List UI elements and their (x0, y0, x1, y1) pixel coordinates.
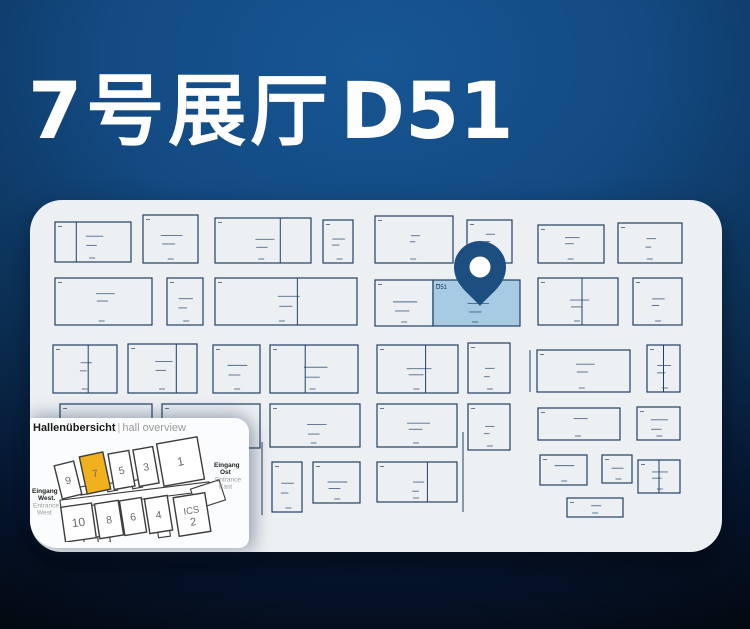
booth (167, 278, 203, 325)
hall-9: 9 (54, 461, 82, 499)
booth (215, 218, 311, 263)
booth-text-marks (621, 228, 656, 260)
booth-text-marks (146, 220, 182, 260)
booth-text-marks (471, 409, 494, 447)
booth (637, 407, 680, 440)
entrance-west-label: West. (38, 495, 55, 502)
hall-8: 8 (94, 500, 123, 538)
booth (143, 215, 198, 263)
booth (377, 404, 457, 447)
booth-text-marks (640, 412, 668, 437)
entrance-west-label: Eingang (32, 488, 58, 495)
overview-title-en: hall overview (122, 422, 186, 434)
booth-text-marks (541, 230, 580, 260)
booth (538, 408, 620, 440)
booth-text-marks (605, 460, 624, 480)
entrance-east-label: Eingang (214, 462, 240, 469)
hall-title-cn: 7号展厅 (28, 67, 332, 157)
booth-text-marks (636, 283, 665, 322)
booth (272, 462, 302, 512)
booth-text-marks (570, 503, 601, 514)
booth-text-marks (170, 283, 193, 322)
booth-text-marks (326, 225, 345, 260)
booth-text-marks (380, 350, 431, 390)
hall-map-card: D51 Hallenübersicht|hall overview 975311… (30, 200, 722, 552)
booth-text-marks (380, 409, 430, 444)
booth-text-marks (378, 285, 417, 323)
booth (213, 345, 260, 393)
booth-text-marks (273, 350, 328, 390)
hall-1: 1 (157, 437, 205, 486)
booth-text-marks (378, 221, 420, 260)
pin-hole (470, 257, 491, 278)
booth (55, 278, 152, 325)
booth (537, 350, 630, 392)
booth (540, 455, 587, 485)
booth (215, 278, 357, 325)
hall-6: 6 (119, 497, 146, 535)
booth-text-marks (218, 223, 274, 260)
booth-text-marks (218, 283, 300, 322)
entrance-east-label-en: East (219, 484, 232, 491)
entrance-east-label: Ost (220, 469, 232, 476)
entrance-east-label-en: Entrance (215, 476, 241, 483)
booth-text-marks (275, 467, 294, 509)
booth-text-marks (541, 413, 588, 437)
hall-overview-inset: Hallenübersicht|hall overview 9753110864… (30, 418, 249, 548)
booth-number: D51 (340, 67, 513, 157)
promo-graphic: 7号展厅D51 D51 Hallenübersicht|hall overvie… (0, 0, 750, 629)
booth-text-marks (56, 350, 92, 390)
hall-overview-title: Hallenübersicht|hall overview (30, 418, 249, 434)
booth (270, 404, 360, 447)
booth (618, 223, 682, 263)
overview-title-de: Hallenübersicht (33, 422, 116, 434)
booth (55, 222, 131, 262)
overview-title-separator: | (118, 422, 121, 434)
entrance-west-label-en: West (37, 510, 52, 517)
booth (323, 220, 353, 263)
booth (270, 345, 358, 393)
entrance-west: EingangWest.EntranceWest (32, 488, 59, 517)
booth-text-marks (543, 460, 574, 482)
hall-ICS-2: ICS2 (173, 493, 211, 537)
booth-text-marks (316, 467, 347, 500)
booth (375, 216, 453, 263)
entrance-west-label-en: Entrance (33, 502, 59, 509)
entrance-east: EingangOstEntranceEast (214, 462, 241, 491)
booth (468, 404, 510, 450)
hall-4: 4 (144, 495, 172, 533)
booth (313, 462, 360, 503)
booth-text-marks (641, 465, 668, 490)
booth-text-marks (58, 283, 115, 322)
booth-number-label: D51 (436, 285, 448, 291)
hall-overview-diagram: 9753110864ICS2EingangWest.EntranceWestEi… (30, 434, 249, 542)
booth-text-marks (273, 409, 327, 444)
hall-10: 10 (61, 503, 97, 542)
booth-text-marks (131, 349, 173, 390)
booth (375, 280, 433, 326)
booth (53, 345, 117, 393)
booth-text-marks (540, 355, 595, 389)
booth-text-marks (650, 350, 671, 389)
booth (633, 278, 682, 325)
booth-text-marks (471, 348, 495, 390)
booth-text-marks (58, 227, 103, 259)
hall-number: 10 (71, 515, 86, 531)
booth (567, 498, 623, 517)
booth-text-marks (216, 350, 247, 390)
booth (128, 344, 197, 393)
booth-text-marks (380, 467, 424, 499)
page-title: 7号展厅D51 (28, 72, 514, 154)
booth (538, 278, 618, 325)
